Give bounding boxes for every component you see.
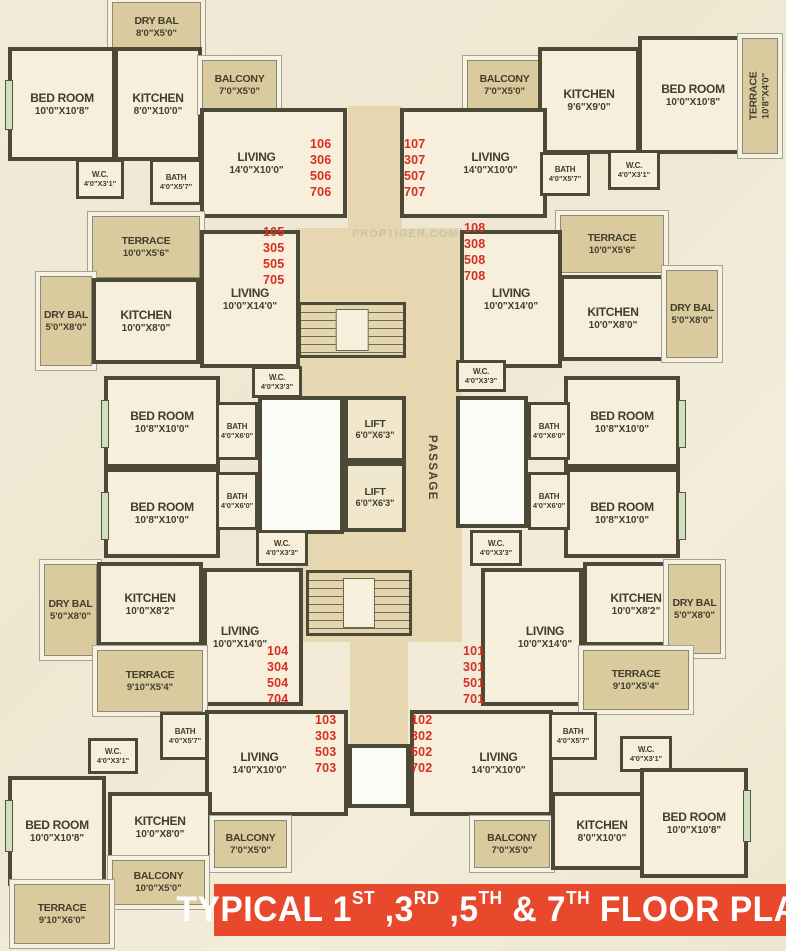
room-label: W.C. xyxy=(105,747,121,756)
window xyxy=(101,492,109,540)
room-label: BATH xyxy=(175,727,195,736)
room-label: BALCONY xyxy=(480,73,530,86)
room-wc-102: W.C.4'0"X3'1" xyxy=(620,736,672,772)
room-dimensions: 10'0"X8'2" xyxy=(612,605,661,618)
room-wc-107: W.C.4'0"X3'1" xyxy=(608,150,660,190)
unit-numbers-106: 106306506706 xyxy=(310,136,331,200)
room-label: TERRACE xyxy=(126,669,175,682)
room-terrace-107: TERRACE10'8"X4'0" xyxy=(742,38,778,154)
room-balcony-107: BALCONY7'0"X5'0" xyxy=(467,60,542,110)
floor-plan: PASSAGE PROPTIGER.COM TYPICAL 1ST ,3RD ,… xyxy=(0,0,786,951)
corridor xyxy=(348,106,402,232)
room-dimensions: 14'0"X10'0" xyxy=(229,164,283,177)
room-label: W.C. xyxy=(269,373,285,382)
floor-plan-title: TYPICAL 1ST ,3RD ,5TH & 7TH FLOOR PLAN xyxy=(214,884,786,936)
window xyxy=(678,400,686,448)
room-dimensions: 10'8"X10'0" xyxy=(135,514,189,527)
room-label: BATH xyxy=(563,727,583,736)
room-label: BED ROOM xyxy=(590,500,654,514)
room-label: KITCHEN xyxy=(610,591,661,605)
unit-number: 703 xyxy=(315,760,336,776)
room-label: BATH xyxy=(166,173,186,182)
room-label: W.C. xyxy=(92,170,108,179)
room-dimensions: 4'0"X3'3" xyxy=(266,548,298,557)
room-dimensions: 9'6"X9'0" xyxy=(567,101,610,114)
unit-numbers-107: 107307507707 xyxy=(404,136,425,200)
room-kitchen-105: KITCHEN10'0"X8'0" xyxy=(92,278,200,364)
watermark: PROPTIGER.COM xyxy=(352,228,459,240)
room-dry-bal-106: DRY BAL8'0"X5'0" xyxy=(112,2,201,52)
room-label: TERRACE xyxy=(588,232,637,245)
room-label: W.C. xyxy=(638,745,654,754)
unit-number: 507 xyxy=(404,168,425,184)
unit-number: 103 xyxy=(315,712,336,728)
room-label: BALCONY xyxy=(215,73,265,86)
room-dimensions: 10'0"X10'8" xyxy=(35,105,89,118)
room-dimensions: 4'0"X6'0" xyxy=(221,501,253,510)
room-label: DRY BAL xyxy=(44,309,88,322)
room-dimensions: 10'0"X10'8" xyxy=(667,824,721,837)
room-label: BALCONY xyxy=(134,870,184,883)
staircase-top xyxy=(298,302,406,358)
unit-number: 705 xyxy=(263,272,284,288)
duct xyxy=(258,396,344,534)
room-label: KITCHEN xyxy=(587,305,638,319)
room-label: W.C. xyxy=(488,539,504,548)
room-dimensions: 10'0"X8'0" xyxy=(136,828,185,841)
unit-number: 104 xyxy=(267,643,288,659)
room-label: LIFT xyxy=(365,486,386,498)
stair-landing xyxy=(343,578,375,628)
unit-number: 505 xyxy=(263,256,284,272)
room-dry-bal-108: DRY BAL5'0"X8'0" xyxy=(666,270,718,358)
room-label: TERRACE xyxy=(748,72,761,121)
unit-number: 701 xyxy=(463,691,484,707)
room-dimensions: 10'0"X5'6" xyxy=(123,248,169,260)
unit-number: 305 xyxy=(263,240,284,256)
room-label: BATH xyxy=(227,492,247,501)
passage-label: PASSAGE xyxy=(414,418,450,518)
room-dimensions: 10'0"X5'0" xyxy=(135,883,181,895)
room-bedroom-101: BED ROOM10'8"X10'0" xyxy=(564,468,680,558)
room-label: LIFT xyxy=(365,418,386,430)
unit-number: 504 xyxy=(267,675,288,691)
room-kitchen-104: KITCHEN10'0"X8'2" xyxy=(97,562,203,646)
room-bedroom-102: BED ROOM10'0"X10'8" xyxy=(640,768,748,878)
unit-numbers-108: 108308508708 xyxy=(464,220,485,284)
room-dimensions: 10'0"X14'0" xyxy=(223,300,277,313)
room-label: BALCONY xyxy=(487,832,537,845)
room-bath-105: BATH4'0"X6'0" xyxy=(216,402,258,460)
room-dimensions: 4'0"X5'7" xyxy=(169,736,201,745)
unit-numbers-101: 101301501701 xyxy=(463,643,484,707)
room-dimensions: 4'0"X3'1" xyxy=(84,179,116,188)
room-label: TERRACE xyxy=(122,235,171,248)
room-dimensions: 7'0"X5'0" xyxy=(492,845,533,857)
room-label: BED ROOM xyxy=(130,409,194,423)
room-dimensions: 10'8"X4'0" xyxy=(761,72,773,121)
room-label: DRY BAL xyxy=(49,598,93,611)
room-label: BED ROOM xyxy=(130,500,194,514)
unit-number: 102 xyxy=(411,712,432,728)
room-label: BED ROOM xyxy=(662,810,726,824)
room-label: LIVING xyxy=(221,624,259,638)
room-bedroom-108: BED ROOM10'8"X10'0" xyxy=(564,376,680,468)
room-dimensions: 4'0"X3'3" xyxy=(480,548,512,557)
room-dimensions: 9'10"X6'0" xyxy=(39,915,85,927)
unit-number: 702 xyxy=(411,760,432,776)
unit-number: 306 xyxy=(310,152,331,168)
passage-text: PASSAGE xyxy=(426,435,438,501)
window xyxy=(743,790,751,842)
room-terrace-101: TERRACE9'10"X5'4" xyxy=(583,650,689,710)
room-bedroom-104: BED ROOM10'8"X10'0" xyxy=(104,468,220,558)
room-label: BATH xyxy=(555,165,575,174)
unit-number: 301 xyxy=(463,659,484,675)
room-dimensions: 14'0"X10'0" xyxy=(232,764,286,777)
room-wc-106: W.C.4'0"X3'1" xyxy=(76,159,124,199)
room-bedroom-106: BED ROOM10'0"X10'8" xyxy=(8,47,116,161)
room-dimensions: 8'0"X5'0" xyxy=(136,28,177,40)
unit-number: 704 xyxy=(267,691,288,707)
window xyxy=(5,800,13,852)
room-bedroom-107: BED ROOM10'0"X10'8" xyxy=(638,36,748,154)
room-label: LIVING xyxy=(471,150,509,164)
room-dimensions: 14'0"X10'0" xyxy=(463,164,517,177)
unit-number: 503 xyxy=(315,744,336,760)
room-label: BED ROOM xyxy=(590,409,654,423)
room-terrace-103: TERRACE9'10"X6'0" xyxy=(14,884,110,944)
room-dimensions: 10'0"X14'0" xyxy=(484,300,538,313)
room-bath-102: BATH4'0"X5'7" xyxy=(549,712,597,760)
corridor xyxy=(350,642,408,748)
room-dimensions: 10'0"X10'8" xyxy=(666,96,720,109)
room-living-101: LIVING10'0"X14'0" xyxy=(481,568,583,706)
room-dimensions: 10'0"X14'0" xyxy=(213,638,267,651)
room-dimensions: 4'0"X5'7" xyxy=(549,174,581,183)
room-label: LIVING xyxy=(237,150,275,164)
room-dimensions: 8'0"X10'0" xyxy=(134,105,183,118)
room-wc-104: W.C.4'0"X3'3" xyxy=(256,530,308,566)
floor-plan-title-text: TYPICAL 1ST ,3RD ,5TH & 7TH FLOOR PLAN xyxy=(177,890,786,930)
unit-number: 508 xyxy=(464,252,485,268)
room-kitchen-103: KITCHEN10'0"X8'0" xyxy=(108,792,212,862)
room-dimensions: 5'0"X8'0" xyxy=(50,611,91,623)
room-dimensions: 10'0"X8'2" xyxy=(126,605,175,618)
staircase-bottom xyxy=(306,570,412,636)
duct xyxy=(456,396,528,528)
room-dimensions: 4'0"X6'0" xyxy=(533,431,565,440)
unit-number: 107 xyxy=(404,136,425,152)
unit-number: 101 xyxy=(463,643,484,659)
room-bath-106: BATH4'0"X5'7" xyxy=(150,159,202,205)
room-label: KITCHEN xyxy=(132,91,183,105)
unit-number: 506 xyxy=(310,168,331,184)
window xyxy=(101,400,109,448)
room-label: BATH xyxy=(227,422,247,431)
room-dimensions: 10'8"X10'0" xyxy=(595,514,649,527)
room-label: KITCHEN xyxy=(563,87,614,101)
window xyxy=(5,80,13,130)
room-dimensions: 10'0"X8'0" xyxy=(589,319,638,332)
room-kitchen-108: KITCHEN10'0"X8'0" xyxy=(560,275,666,361)
room-terrace-105: TERRACE10'0"X5'6" xyxy=(92,216,200,278)
room-kitchen-107: KITCHEN9'6"X9'0" xyxy=(538,47,640,154)
room-dimensions: 10'0"X5'6" xyxy=(589,245,635,257)
room-balcony-102: BALCONY7'0"X5'0" xyxy=(474,820,550,868)
room-dimensions: 7'0"X5'0" xyxy=(219,86,260,98)
room-bath-103: BATH4'0"X5'7" xyxy=(160,712,210,760)
room-terrace-108: TERRACE10'0"X5'6" xyxy=(560,215,664,273)
room-label: BED ROOM xyxy=(25,818,89,832)
room-dimensions: 9'10"X5'4" xyxy=(613,681,659,693)
room-living-105: LIVING10'0"X14'0" xyxy=(200,230,300,368)
room-bath-101: BATH4'0"X6'0" xyxy=(528,472,570,530)
unit-number: 307 xyxy=(404,152,425,168)
room-dimensions: 5'0"X8'0" xyxy=(672,315,713,327)
room-kitchen-106: KITCHEN8'0"X10'0" xyxy=(114,47,202,161)
room-dimensions: 10'0"X14'0" xyxy=(518,638,572,651)
unit-number: 105 xyxy=(263,224,284,240)
room-dimensions: 4'0"X3'1" xyxy=(618,170,650,179)
unit-numbers-102: 102302502702 xyxy=(411,712,432,776)
room-label: BED ROOM xyxy=(30,91,94,105)
room-label: TERRACE xyxy=(38,902,87,915)
room-label: W.C. xyxy=(626,161,642,170)
room-dimensions: 4'0"X6'0" xyxy=(221,431,253,440)
room-dry-bal-104: DRY BAL5'0"X8'0" xyxy=(44,564,97,656)
room-dimensions: 4'0"X3'1" xyxy=(97,756,129,765)
unit-number: 303 xyxy=(315,728,336,744)
unit-number: 308 xyxy=(464,236,485,252)
room-dimensions: 7'0"X5'0" xyxy=(230,845,271,857)
room-label: LIVING xyxy=(526,624,564,638)
unit-number: 708 xyxy=(464,268,485,284)
room-dimensions: 10'8"X10'0" xyxy=(595,423,649,436)
unit-number: 106 xyxy=(310,136,331,152)
room-bath-104: BATH4'0"X6'0" xyxy=(216,472,258,530)
room-dimensions: 4'0"X3'3" xyxy=(465,376,497,385)
room-label: W.C. xyxy=(473,367,489,376)
room-label: LIVING xyxy=(240,750,278,764)
room-dimensions: 4'0"X3'3" xyxy=(261,382,293,391)
room-terrace-104: TERRACE9'10"X5'4" xyxy=(97,650,203,712)
room-wc-108: W.C.4'0"X3'3" xyxy=(456,360,506,392)
room-dimensions: 10'0"X8'0" xyxy=(122,322,171,335)
room-label: W.C. xyxy=(274,539,290,548)
room-bedroom-103: BED ROOM10'0"X10'8" xyxy=(8,776,106,886)
room-dimensions: 4'0"X5'7" xyxy=(557,736,589,745)
room-dry-bal-105: DRY BAL5'0"X8'0" xyxy=(40,276,92,366)
room-wc-105: W.C.4'0"X3'3" xyxy=(252,366,302,398)
unit-number: 707 xyxy=(404,184,425,200)
unit-numbers-103: 103303503703 xyxy=(315,712,336,776)
room-dimensions: 7'0"X5'0" xyxy=(484,86,525,98)
room-label: DRY BAL xyxy=(673,597,717,610)
room-lift-2: LIFT6'0"X6'3" xyxy=(344,462,406,532)
room-dimensions: 10'8"X10'0" xyxy=(135,423,189,436)
room-dimensions: 4'0"X6'0" xyxy=(533,501,565,510)
unit-number: 108 xyxy=(464,220,485,236)
room-label: BALCONY xyxy=(226,832,276,845)
room-label: KITCHEN xyxy=(134,814,185,828)
room-wc-103: W.C.4'0"X3'1" xyxy=(88,738,138,774)
room-label: LIVING xyxy=(492,286,530,300)
room-dimensions: 6'0"X6'3" xyxy=(356,430,395,441)
room-balcony-106: BALCONY7'0"X5'0" xyxy=(202,60,277,110)
room-dimensions: 10'0"X10'8" xyxy=(30,832,84,845)
room-dimensions: 5'0"X8'0" xyxy=(46,322,87,334)
room-dimensions: 14'0"X10'0" xyxy=(471,764,525,777)
room-kitchen-102: KITCHEN8'0"X10'0" xyxy=(551,792,653,870)
room-lift-1: LIFT6'0"X6'3" xyxy=(344,396,406,462)
room-label: BATH xyxy=(539,492,559,501)
unit-numbers-104: 104304504704 xyxy=(267,643,288,707)
unit-number: 706 xyxy=(310,184,331,200)
room-bath-107: BATH4'0"X5'7" xyxy=(540,152,590,196)
room-label: LIVING xyxy=(479,750,517,764)
room-label: DRY BAL xyxy=(135,15,179,28)
unit-number: 502 xyxy=(411,744,432,760)
room-dimensions: 6'0"X6'3" xyxy=(356,498,395,509)
room-balcony-103b: BALCONY7'0"X5'0" xyxy=(214,820,287,868)
stair-landing xyxy=(336,309,369,351)
room-label: BED ROOM xyxy=(661,82,725,96)
window xyxy=(678,492,686,540)
room-dry-bal-101: DRY BAL5'0"X8'0" xyxy=(668,564,721,654)
room-bedroom-105: BED ROOM10'8"X10'0" xyxy=(104,376,220,468)
unit-numbers-105: 105305505705 xyxy=(263,224,284,288)
room-label: KITCHEN xyxy=(120,308,171,322)
duct xyxy=(348,744,410,808)
room-wc-101: W.C.4'0"X3'3" xyxy=(470,530,522,566)
room-dimensions: 8'0"X10'0" xyxy=(578,832,627,845)
room-label: KITCHEN xyxy=(124,591,175,605)
room-dimensions: 4'0"X5'7" xyxy=(160,182,192,191)
unit-number: 304 xyxy=(267,659,288,675)
room-label: TERRACE xyxy=(612,668,661,681)
room-dimensions: 4'0"X3'1" xyxy=(630,754,662,763)
room-bath-108: BATH4'0"X6'0" xyxy=(528,402,570,460)
unit-number: 302 xyxy=(411,728,432,744)
room-label: KITCHEN xyxy=(576,818,627,832)
room-dimensions: 9'10"X5'4" xyxy=(127,682,173,694)
room-label: DRY BAL xyxy=(670,302,714,315)
room-dimensions: 5'0"X8'0" xyxy=(674,610,715,622)
unit-number: 501 xyxy=(463,675,484,691)
room-label: BATH xyxy=(539,422,559,431)
